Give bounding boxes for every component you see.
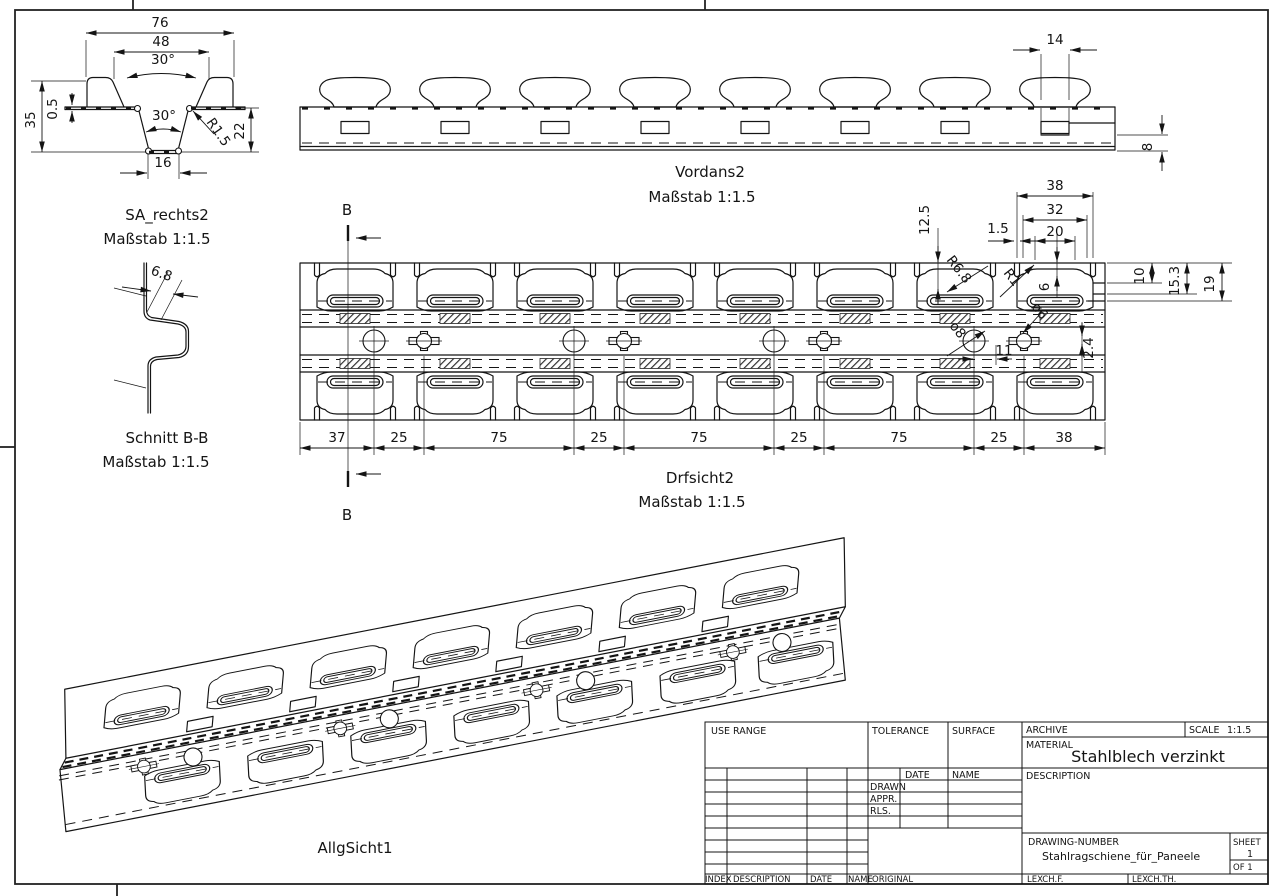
- view-scale: Maßstab 1:1.5: [648, 188, 755, 206]
- dim-8: 8: [1140, 143, 1156, 152]
- tb-scale-value: 1:1.5: [1227, 725, 1251, 736]
- view-title: Schnitt B-B: [126, 429, 209, 447]
- tb-material-label: MATERIAL: [1026, 740, 1074, 751]
- section-mark-b-bottom: B: [342, 506, 352, 524]
- view-scale: Maßstab 1:1.5: [103, 230, 210, 248]
- tb-drawing-number: Stahlragschiene_für_Paneele: [1042, 850, 1200, 863]
- dim-r1-5: R1.5: [203, 115, 234, 149]
- tb-description: DESCRIPTION: [1026, 771, 1090, 782]
- tb-date-col: DATE: [810, 875, 832, 885]
- tb-index: INDEX: [705, 875, 732, 885]
- tb-of-value: OF 1: [1233, 863, 1253, 873]
- view-title: SA_rechts2: [125, 206, 209, 225]
- dim-angle-upper: 30°: [151, 52, 175, 68]
- dim-6-8: 6.8: [149, 263, 175, 285]
- dim-15-3: 15.3: [1167, 266, 1183, 296]
- tb-lexchth: LEXCH.TH.: [1132, 875, 1176, 885]
- dim-25b: 25: [590, 430, 607, 446]
- dim-r6-8: R6.8: [943, 253, 975, 287]
- tb-archive: ARCHIVE: [1026, 725, 1068, 736]
- dim-11: 11: [995, 343, 1012, 359]
- dim-2-4: 2.4: [1081, 337, 1097, 358]
- view-schnitt-bb: 6.8 Schnitt B-B Maßstab 1:1.5: [102, 263, 209, 471]
- plan-bottom-dims: 37 25 75 25 75 25 75 25 38: [300, 356, 1105, 455]
- plan-bottom-cutouts: [317, 372, 1093, 414]
- iso-holes: [127, 632, 792, 778]
- tb-drawing-number-label: DRAWING-NUMBER: [1028, 837, 1119, 848]
- view-vordans2: 14 8 Vordans2 Maßstab 1:1.5: [300, 32, 1168, 206]
- dim-25a: 25: [390, 430, 407, 446]
- tb-lexchf: LEXCH.F.: [1027, 875, 1063, 885]
- dim-16: 16: [154, 155, 171, 171]
- dim-25c: 25: [790, 430, 807, 446]
- dim-14: 14: [1046, 32, 1063, 48]
- iso-bottom-cutouts: [140, 639, 839, 807]
- dim-38t: 38: [1046, 178, 1063, 194]
- tb-date-header: DATE: [905, 770, 930, 781]
- drawing-sheet: 76 48 30° 30° 35 0.5 22 R1.5 16 SA_recht…: [0, 0, 1280, 896]
- tb-original: ORIGINAL: [872, 875, 913, 885]
- tb-surface: SURFACE: [952, 726, 995, 737]
- dim-48: 48: [152, 34, 169, 50]
- dim-6: 6: [1037, 283, 1053, 292]
- iso-top-cutouts: [97, 562, 806, 731]
- dim-35: 35: [23, 111, 39, 128]
- dim-12-5: 12.5: [917, 205, 933, 235]
- view-scale: Maßstab 1:1.5: [102, 453, 209, 471]
- dim-32: 32: [1046, 202, 1063, 218]
- title-block: USE RANGE TOLERANCE SURFACE ARCHIVE SCAL…: [705, 722, 1268, 885]
- view-title: Drfsicht2: [666, 469, 734, 487]
- tb-sheet-value: 1: [1247, 849, 1253, 860]
- tb-drawn: DRAWN: [870, 782, 906, 793]
- view-allgsicht1: AllgSicht1: [39, 538, 871, 857]
- tb-name-header: NAME: [952, 770, 980, 781]
- tb-sheet-label: SHEET: [1233, 838, 1262, 848]
- section-mark-b-top: B: [342, 201, 352, 219]
- plan-holes: [359, 326, 1042, 356]
- view-title: AllgSicht1: [318, 839, 393, 857]
- dim-38b: 38: [1055, 430, 1072, 446]
- dim-75b: 75: [690, 430, 707, 446]
- view-scale: Maßstab 1:1.5: [638, 493, 745, 511]
- dim-0-5: 0.5: [45, 98, 61, 119]
- dim-angle-lower: 30°: [152, 108, 176, 124]
- front-slots: [341, 122, 1069, 134]
- dim-37: 37: [328, 430, 345, 446]
- dim-75c: 75: [890, 430, 907, 446]
- dim-20: 20: [1046, 224, 1063, 240]
- tb-description-col: DESCRIPTION: [733, 875, 791, 885]
- view-drfsicht2: B B 37 25 75 25 75 25 75 25 38: [300, 178, 1232, 524]
- view-sa-rechts2: 76 48 30° 30° 35 0.5 22 R1.5 16 SA_recht…: [23, 15, 259, 248]
- dim-10: 10: [1132, 267, 1148, 284]
- dim-76: 76: [151, 15, 168, 31]
- front-studs: [320, 78, 1091, 108]
- iso-web-slots: [185, 616, 731, 731]
- dim-19: 19: [1202, 275, 1218, 292]
- dim-22: 22: [232, 122, 248, 139]
- dim-25d: 25: [990, 430, 1007, 446]
- tb-appr: APPR.: [870, 794, 897, 805]
- tb-use-range: USE RANGE: [711, 726, 766, 737]
- tb-scale-label: SCALE: [1189, 725, 1219, 736]
- plan-top-cutouts: [317, 269, 1093, 311]
- tb-rls: RLS.: [870, 806, 891, 817]
- tb-name-col: NAME: [848, 875, 873, 885]
- view-title: Vordans2: [675, 163, 745, 181]
- drawing-canvas: 76 48 30° 30° 35 0.5 22 R1.5 16 SA_recht…: [0, 0, 1280, 896]
- dim-1-5: 1.5: [987, 221, 1008, 237]
- dim-75a: 75: [490, 430, 507, 446]
- tb-tolerance: TOLERANCE: [871, 726, 929, 737]
- tb-material-value: Stahlblech verzinkt: [1071, 747, 1225, 766]
